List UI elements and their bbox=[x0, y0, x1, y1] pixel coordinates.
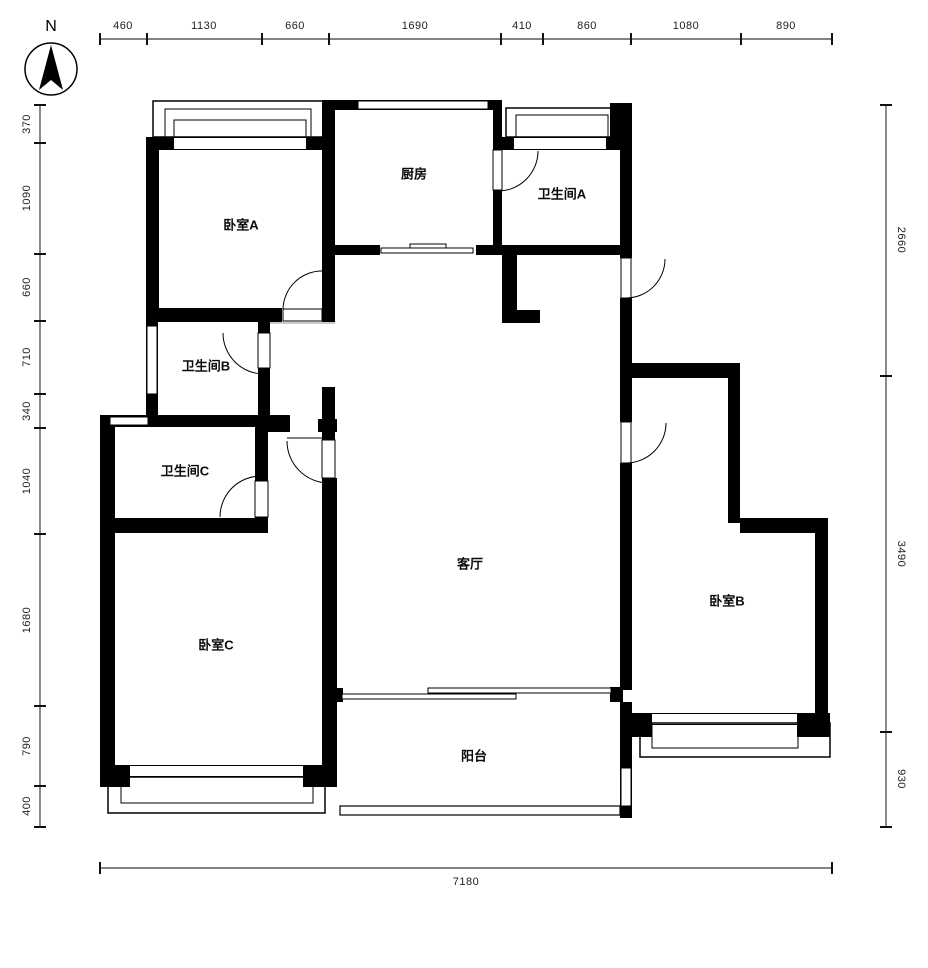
sliding-doors bbox=[340, 244, 620, 815]
room-label-bathroom-c: 卫生间C bbox=[161, 461, 209, 480]
dim-left-3: 710 bbox=[21, 347, 33, 367]
dim-top-4: 410 bbox=[512, 20, 532, 32]
floorplan-canvas: N 卧室A 厨房 卫生间A 卫生间B 卫生间C 客厅 卧室B 卧室C 阳台 46… bbox=[0, 0, 928, 968]
dim-top-5: 860 bbox=[577, 20, 597, 32]
dim-left-5: 1040 bbox=[21, 468, 33, 494]
floorplan-drawing bbox=[0, 0, 928, 968]
dim-top-0: 460 bbox=[113, 20, 133, 32]
room-label-kitchen: 厨房 bbox=[401, 164, 427, 183]
dim-top-2: 660 bbox=[285, 20, 305, 32]
room-label-bedroom-c: 卧室C bbox=[198, 635, 233, 654]
dim-left-1: 1090 bbox=[21, 185, 33, 211]
windows bbox=[110, 101, 631, 806]
dim-right-2: 930 bbox=[895, 769, 907, 789]
dim-bottom-0: 7180 bbox=[453, 876, 479, 888]
dim-left-2: 660 bbox=[21, 277, 33, 297]
dim-left-8: 400 bbox=[21, 796, 33, 816]
dim-right-1: 3490 bbox=[895, 541, 907, 567]
room-label-balcony: 阳台 bbox=[461, 746, 487, 765]
dim-top-3: 1690 bbox=[402, 20, 428, 32]
dim-left-7: 790 bbox=[21, 736, 33, 756]
dim-top-1: 1130 bbox=[191, 20, 217, 32]
dim-left-6: 1680 bbox=[21, 607, 33, 633]
dim-top-6: 1080 bbox=[673, 20, 699, 32]
walls bbox=[100, 100, 830, 818]
room-label-bathroom-b: 卫生间B bbox=[182, 356, 230, 375]
dim-top-7: 890 bbox=[776, 20, 796, 32]
dim-left-4: 340 bbox=[21, 401, 33, 421]
room-label-bedroom-a: 卧室A bbox=[223, 215, 258, 234]
north-compass-icon bbox=[25, 43, 77, 95]
wall-openings bbox=[130, 138, 797, 776]
bay-windows bbox=[108, 101, 830, 813]
dim-right-0: 2660 bbox=[895, 227, 907, 253]
room-label-living-room: 客厅 bbox=[457, 554, 483, 573]
north-label: N bbox=[45, 18, 57, 36]
dim-left-0: 370 bbox=[21, 114, 33, 134]
room-label-bathroom-a: 卫生间A bbox=[538, 184, 586, 203]
doors bbox=[220, 150, 666, 517]
room-label-bedroom-b: 卧室B bbox=[709, 591, 744, 610]
